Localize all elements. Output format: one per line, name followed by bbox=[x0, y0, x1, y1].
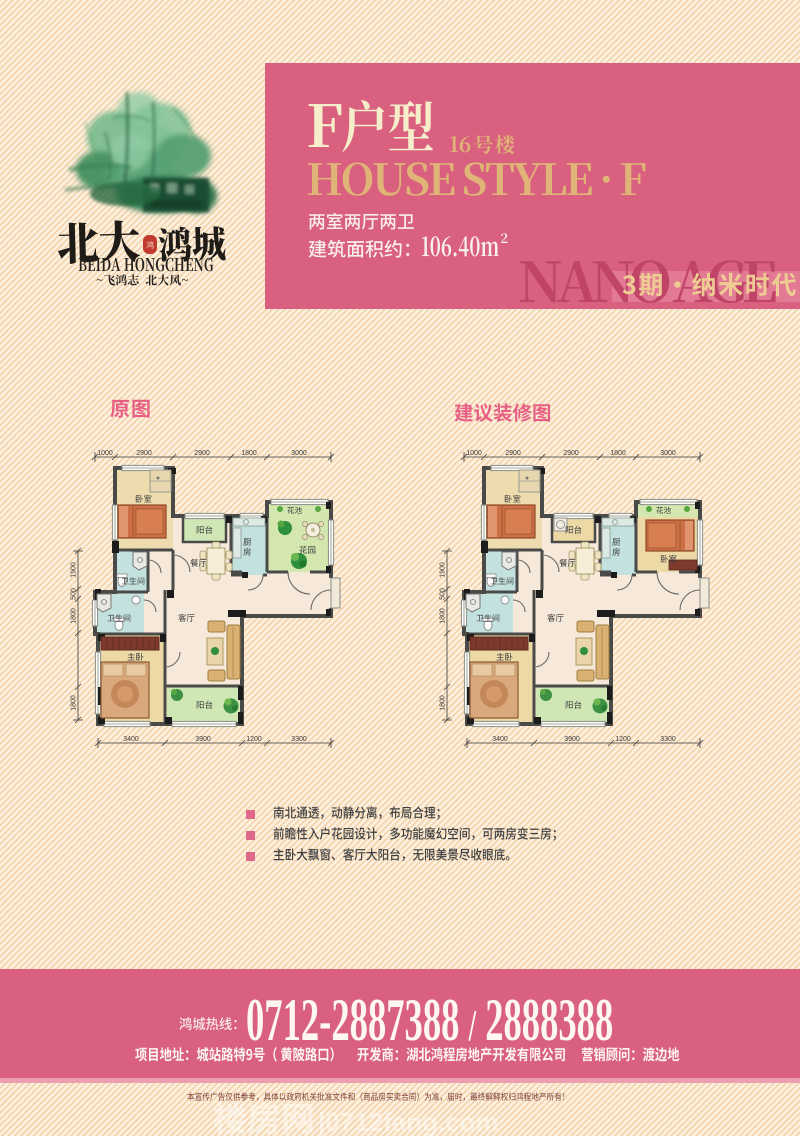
svg-text:3400: 3400 bbox=[492, 736, 508, 743]
svg-text:3000: 3000 bbox=[291, 450, 307, 457]
svg-text:1800: 1800 bbox=[71, 608, 78, 624]
svg-text:1800: 1800 bbox=[71, 695, 78, 711]
svg-text:1800: 1800 bbox=[440, 608, 447, 624]
svg-text:2900: 2900 bbox=[505, 450, 521, 457]
svg-text:500: 500 bbox=[440, 588, 447, 600]
svg-text:3300: 3300 bbox=[291, 736, 307, 743]
svg-text:1200: 1200 bbox=[246, 736, 262, 743]
svg-text:2900: 2900 bbox=[563, 450, 579, 457]
svg-text:1000: 1000 bbox=[466, 450, 482, 457]
svg-text:3400: 3400 bbox=[123, 736, 139, 743]
svg-text:2900: 2900 bbox=[136, 450, 152, 457]
svg-text:1800: 1800 bbox=[241, 450, 257, 457]
svg-text:1000: 1000 bbox=[97, 450, 113, 457]
svg-text:3900: 3900 bbox=[564, 736, 580, 743]
svg-text:3300: 3300 bbox=[660, 736, 676, 743]
svg-text:0712-2887388 / 2888388: 0712-2887388 / 2888388 bbox=[246, 990, 613, 1044]
svg-text:1800: 1800 bbox=[440, 695, 447, 711]
svg-text:1800: 1800 bbox=[610, 450, 626, 457]
svg-text:|0712fang.com: |0712fang.com bbox=[318, 1107, 499, 1136]
svg-text:1200: 1200 bbox=[615, 736, 631, 743]
svg-text:3000: 3000 bbox=[660, 450, 676, 457]
svg-text:3900: 3900 bbox=[195, 736, 211, 743]
svg-text:500: 500 bbox=[71, 588, 78, 600]
svg-text:2900: 2900 bbox=[194, 450, 210, 457]
svg-text:1900: 1900 bbox=[440, 562, 447, 578]
svg-text:1900: 1900 bbox=[71, 562, 78, 578]
